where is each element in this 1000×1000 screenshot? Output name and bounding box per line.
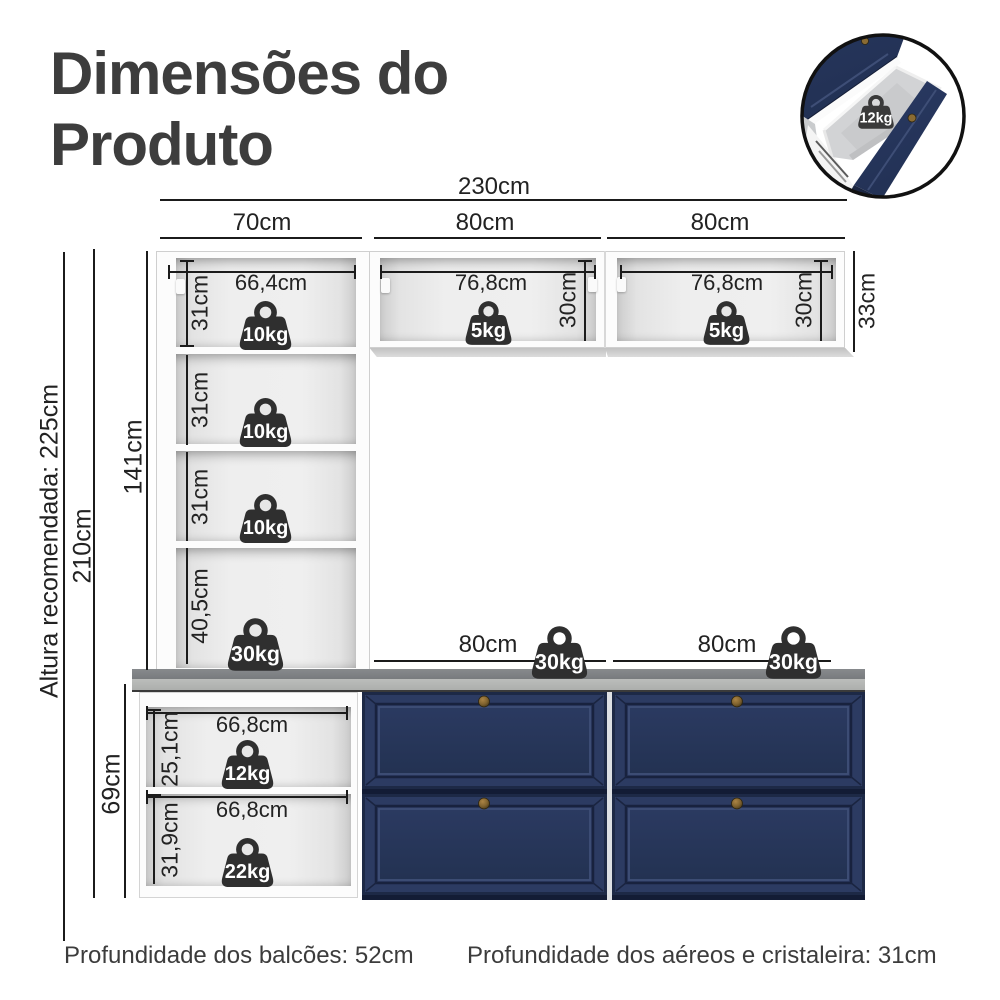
svg-text:12kg: 12kg xyxy=(225,763,271,785)
svg-text:30kg: 30kg xyxy=(769,651,818,675)
svg-text:10kg: 10kg xyxy=(243,517,289,539)
svg-text:5kg: 5kg xyxy=(471,318,506,341)
svg-text:30kg: 30kg xyxy=(231,643,280,667)
svg-text:30kg: 30kg xyxy=(535,651,584,675)
svg-text:12kg: 12kg xyxy=(859,110,892,126)
svg-text:5kg: 5kg xyxy=(709,318,744,341)
svg-text:22kg: 22kg xyxy=(225,861,271,883)
svg-text:10kg: 10kg xyxy=(243,324,289,346)
svg-text:10kg: 10kg xyxy=(243,421,289,443)
